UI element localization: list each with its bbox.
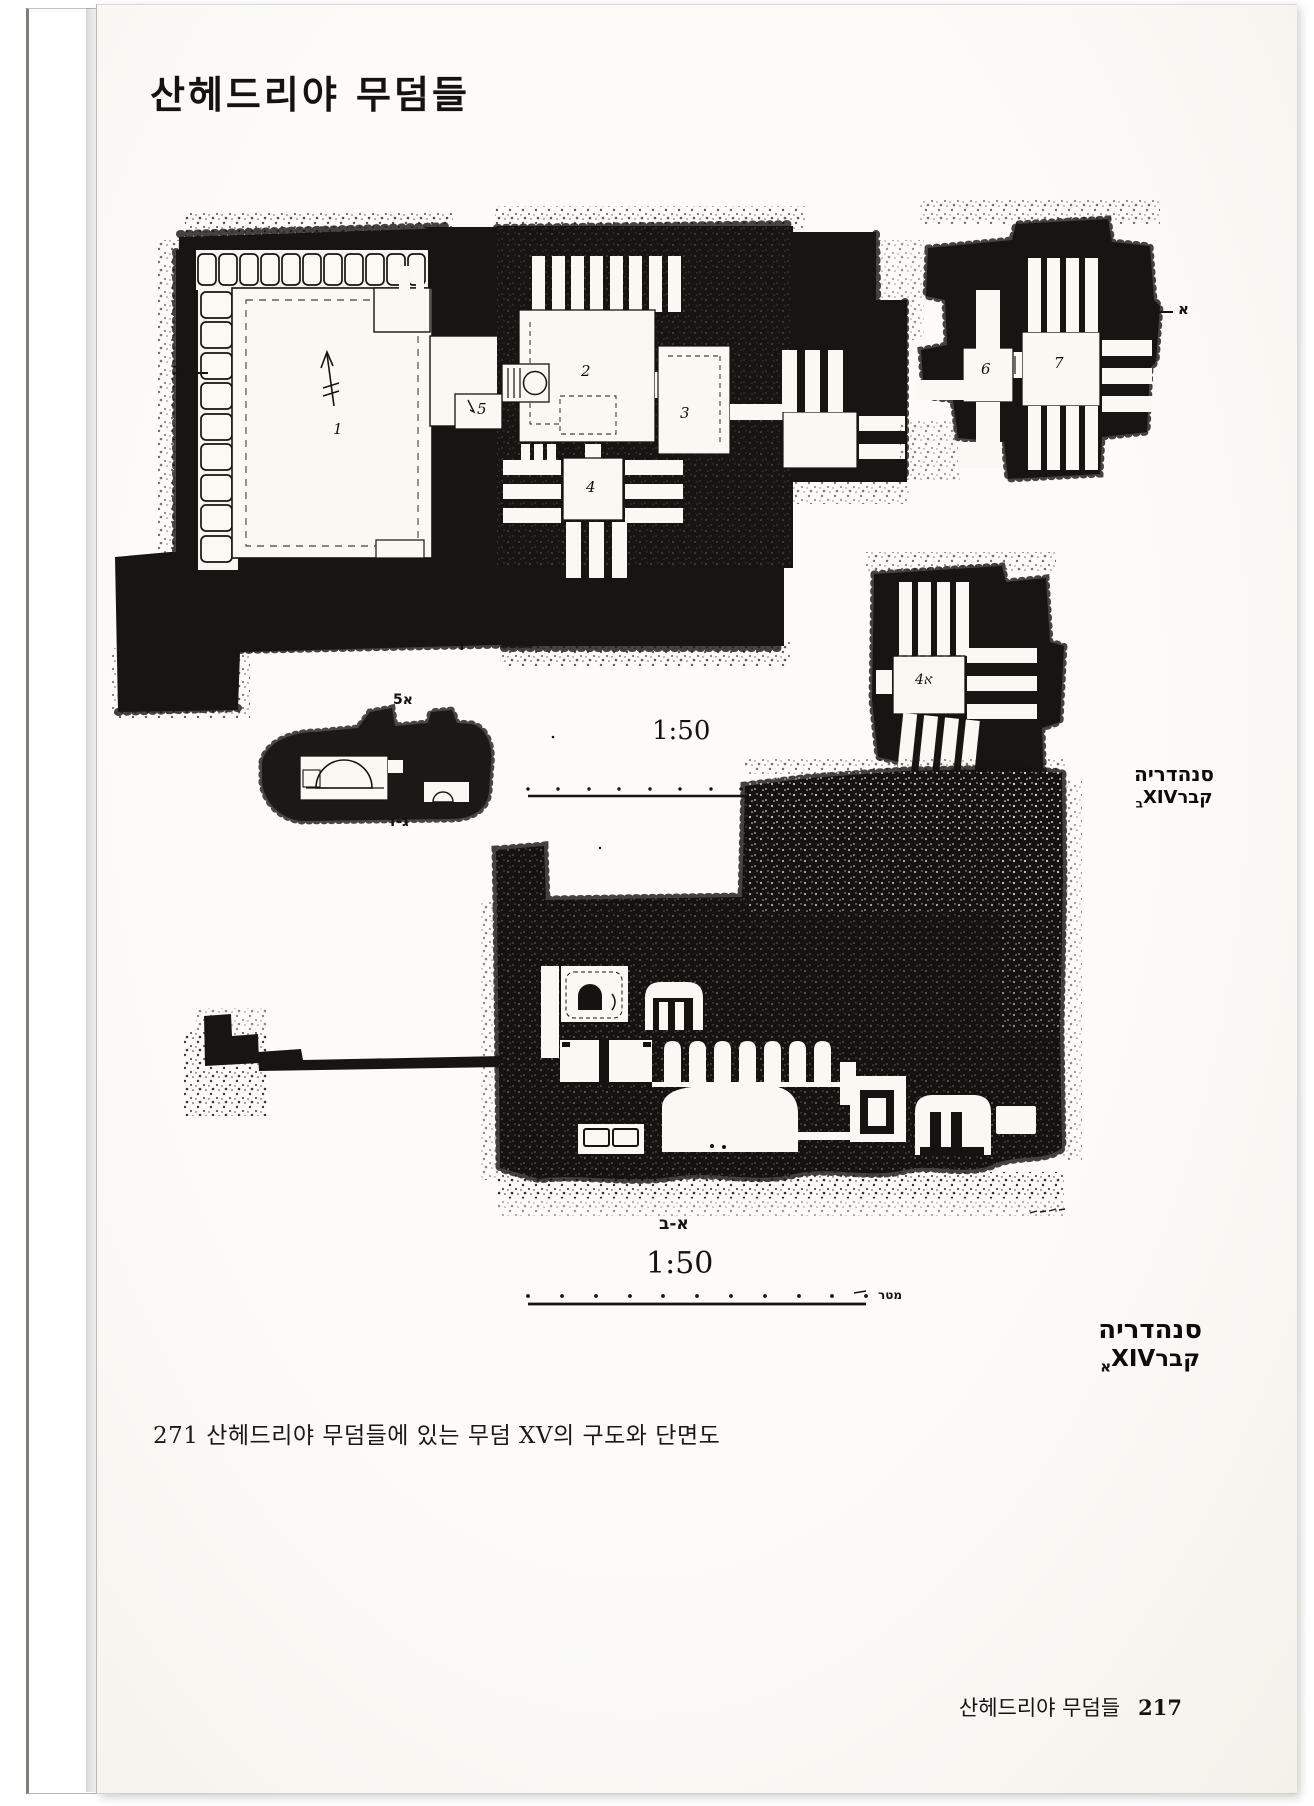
mini-section-top-label: 5א xyxy=(393,692,413,708)
room-label-4: 4 xyxy=(586,478,596,496)
room-label-1: 1 xyxy=(333,420,343,438)
footer-section-title: 산헤드리야 무덤들 xyxy=(959,1696,1120,1720)
plan-scale-unit: מטר xyxy=(804,780,822,790)
figure-caption: 271 산헤드리야 무덤들에 있는 무덤 XV의 구도와 단면도 xyxy=(153,1416,720,1450)
room-label-2: 2 xyxy=(581,362,591,380)
plan-tomb-suffix: ב xyxy=(1136,796,1143,810)
plan-hebrew-caption: סנהדריה קברXIVב xyxy=(1134,763,1214,810)
section-hebrew-caption-line2: קברXIVא xyxy=(1098,1346,1202,1376)
plan-side-chambers xyxy=(900,200,1173,480)
plan-burial-chambers xyxy=(455,206,924,666)
plan-scale-ratio: 1:50 xyxy=(652,716,710,746)
section-marker-bottom: ד xyxy=(456,636,465,654)
section-marker-left: ב xyxy=(172,360,181,378)
scale-bar-section xyxy=(526,1291,868,1304)
room-label-annex: 4א xyxy=(915,672,932,689)
page-title: 산헤드리야 무덤들 xyxy=(150,64,470,119)
section-marker-right: א xyxy=(1178,300,1189,318)
room-label-5: 5 xyxy=(477,400,487,418)
section-scale-unit: מטר xyxy=(878,1288,902,1302)
figure-canvas xyxy=(0,0,1314,1806)
section-cut-label: א-ב xyxy=(659,1214,689,1234)
room-label-7: 7 xyxy=(1054,354,1064,372)
scanned-book-page: { "page": { "title": "산헤드리야 무덤들", "capti… xyxy=(0,0,1314,1806)
section-scale-ratio: 1:50 xyxy=(646,1246,713,1281)
mini-section-bottom-label: ג-ד xyxy=(387,812,409,830)
section-tomb-suffix: א xyxy=(1100,1357,1111,1375)
room-label-3: 3 xyxy=(680,404,690,422)
section-hebrew-caption-line1: סנהדריה xyxy=(1098,1315,1202,1346)
section-drawing xyxy=(184,758,1082,1216)
plan-hebrew-caption-line1: סנהדריה xyxy=(1134,763,1214,787)
footer-page-number: 217 xyxy=(1138,1695,1182,1720)
page-footer: 산헤드리야 무덤들217 xyxy=(959,1692,1182,1722)
room-label-6: 6 xyxy=(981,360,991,378)
section-hebrew-caption: סנהדריה קברXIVא xyxy=(1098,1315,1202,1376)
plan-courtyard xyxy=(112,212,534,718)
mini-section-drawing xyxy=(262,708,491,821)
plan-hebrew-caption-line2: קברXIVב xyxy=(1134,787,1214,811)
